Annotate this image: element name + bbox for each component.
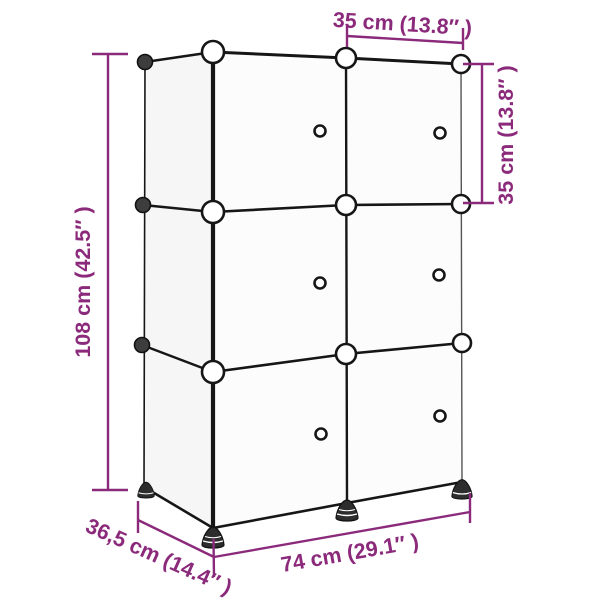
connector-ball-icon <box>336 344 356 364</box>
dimension-label-bottom-width: 74 cm (29.1″ ) <box>279 529 420 577</box>
door-knob-icon <box>435 411 446 422</box>
product-diagram: 35 cm (13.8″ ) 35 cm (13.8″ ) 108 cm (42… <box>0 0 600 600</box>
connector-ball-icon <box>202 201 224 223</box>
diagram-canvas: 35 cm (13.8″ ) 35 cm (13.8″ ) 108 cm (42… <box>0 0 600 600</box>
connector-ball-icon <box>136 198 151 213</box>
dimension-label-left-height: 108 cm (42.5″ ) <box>71 206 95 357</box>
door-knob-icon <box>316 429 327 440</box>
cabinet-side-face <box>144 52 213 528</box>
dimension-left-height: 108 cm (42.5″ ) <box>71 54 128 490</box>
front-right-edge <box>461 64 462 482</box>
connector-ball-icon <box>135 338 150 353</box>
connector-ball-icon <box>202 41 224 63</box>
connector-ball-icon <box>336 48 356 68</box>
dimension-top-width: 35 cm (13.8″ ) <box>332 8 473 50</box>
connector-ball-icon <box>453 334 471 352</box>
cabinet <box>135 41 473 548</box>
door-divider <box>346 58 347 503</box>
dimension-right-height: 35 cm (13.8″ ) <box>463 64 518 205</box>
connector-ball-icon <box>202 361 224 383</box>
door-knob-icon <box>315 278 326 289</box>
connector-ball-icon <box>336 195 356 215</box>
connector-ball-icon <box>138 55 153 70</box>
door-knob-icon <box>315 126 326 137</box>
dimension-label-right-height: 35 cm (13.8″ ) <box>494 65 518 204</box>
back-left-edge <box>144 62 145 487</box>
door-knob-icon <box>435 128 446 139</box>
door-knob-icon <box>434 270 445 281</box>
cabinet-front-face <box>213 52 462 528</box>
